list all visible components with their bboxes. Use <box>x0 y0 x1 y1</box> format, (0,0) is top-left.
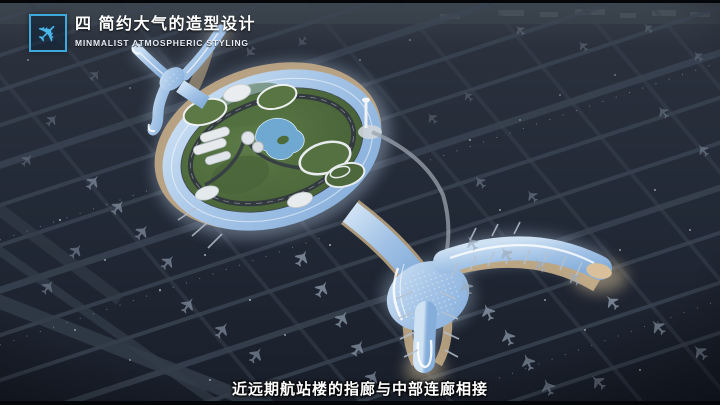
slide-subtitle: MINMALIST ATMOSPHERIC STYLING <box>75 38 256 48</box>
vignette <box>0 0 720 405</box>
airport-render <box>0 0 720 405</box>
header-text: 四 简约大气的造型设计 MINMALIST ATMOSPHERIC STYLIN… <box>75 14 256 48</box>
letterbox-bar-top <box>0 0 720 3</box>
letterbox-bar-bottom <box>0 401 720 405</box>
airplane-icon: ✈ <box>29 14 67 52</box>
slide: ✈ 四 简约大气的造型设计 MINMALIST ATMOSPHERIC STYL… <box>0 0 720 405</box>
slide-title: 四 简约大气的造型设计 <box>75 15 256 34</box>
airplane-glyph: ✈ <box>31 16 65 50</box>
header-banner: ✈ 四 简约大气的造型设计 MINMALIST ATMOSPHERIC STYL… <box>29 14 256 52</box>
subtitle-caption: 近远期航站楼的指廊与中部连廊相接 <box>0 378 720 399</box>
